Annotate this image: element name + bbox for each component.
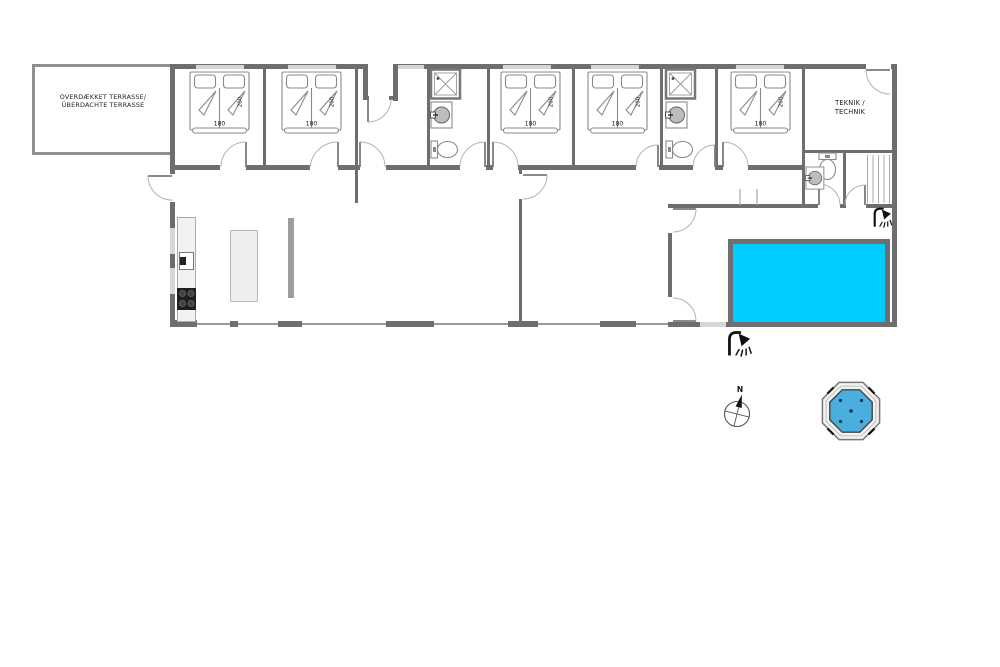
double-bed-5: 180 200 xyxy=(731,72,790,133)
door-arc xyxy=(148,176,172,200)
door-arc xyxy=(368,99,391,122)
door-arc xyxy=(673,209,696,232)
plan-overlay: 180 200 180 200 180 200 180 200 180 200 xyxy=(0,0,1000,667)
swimming-pool xyxy=(731,242,888,325)
door-arc xyxy=(723,142,748,167)
bed-width-label: 180 xyxy=(214,121,226,128)
bed-length-label: 200 xyxy=(636,96,642,107)
bed-width-label: 180 xyxy=(755,121,767,128)
compass-north-label: N xyxy=(737,385,743,394)
bed-width-label: 180 xyxy=(612,121,624,128)
bed-length-label: 200 xyxy=(549,96,555,107)
corridor-jambs xyxy=(740,189,757,205)
double-bed-1: 180 200 xyxy=(190,72,249,133)
bed-length-label: 200 xyxy=(238,96,244,107)
double-bed-4: 180 200 xyxy=(588,72,647,133)
bed-width-label: 180 xyxy=(525,121,537,128)
door-arc xyxy=(845,185,865,205)
door-arc xyxy=(636,145,658,167)
floor-plan: OVERDÆKKET TERRASSE/ ÜBERDACHTE TERRASSE xyxy=(0,0,1000,667)
door-arc xyxy=(493,142,518,167)
toilet-icon xyxy=(666,141,693,158)
door-arc xyxy=(360,142,385,167)
compass-icon: N xyxy=(722,385,754,429)
bed-width-label: 180 xyxy=(306,121,318,128)
shower-cabin-icon xyxy=(431,70,460,99)
door-arc xyxy=(866,70,890,94)
sauna-hatching xyxy=(868,155,890,203)
sink-icon xyxy=(806,167,824,189)
shower-cabin-icon xyxy=(666,70,695,99)
bed-length-label: 200 xyxy=(779,96,785,107)
double-bed-2: 180 200 xyxy=(282,72,341,133)
door-arc xyxy=(523,175,547,199)
door-arc xyxy=(221,142,246,167)
toilet-icon xyxy=(431,141,458,158)
double-bed-3: 180 200 xyxy=(501,72,560,133)
stove-burners xyxy=(180,291,195,307)
hot-tub-icon xyxy=(822,382,879,439)
bed-length-label: 200 xyxy=(330,96,336,107)
shower-icon xyxy=(729,332,751,356)
door-arc xyxy=(310,142,338,167)
sink-icon xyxy=(666,102,688,128)
door-arc xyxy=(460,142,485,167)
shower-icon xyxy=(875,209,892,228)
door-arc xyxy=(693,145,715,167)
sink-icon xyxy=(431,102,453,128)
door-arc xyxy=(673,298,696,321)
